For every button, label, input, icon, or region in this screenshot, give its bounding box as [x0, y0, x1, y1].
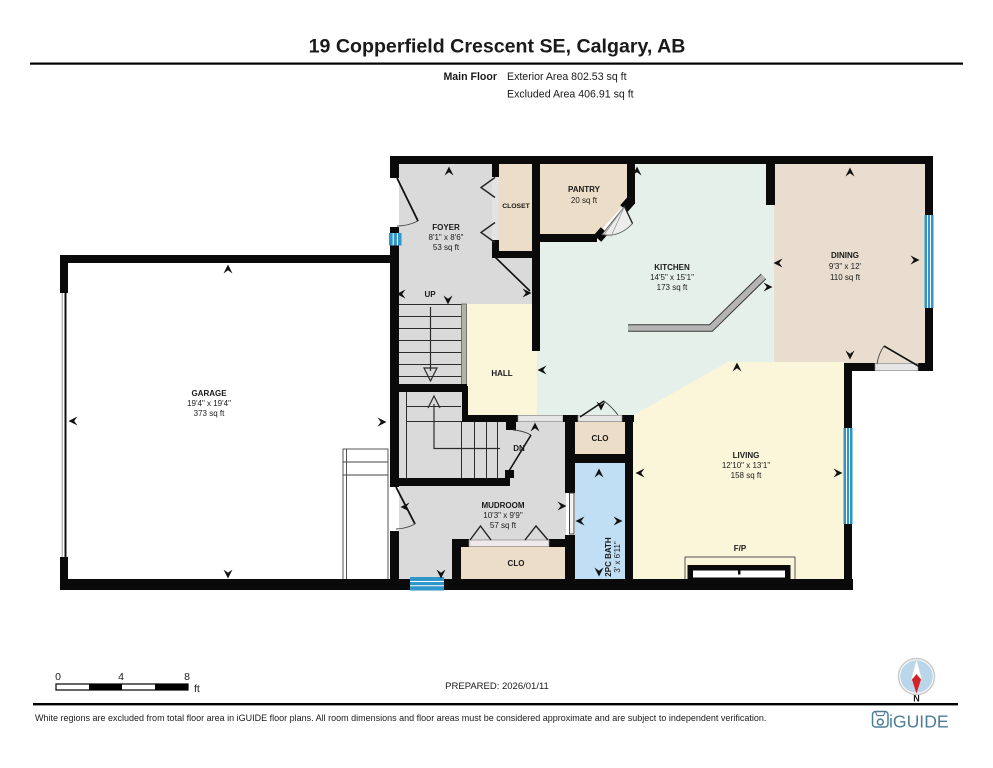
svg-text:LIVING: LIVING	[733, 451, 760, 460]
svg-text:DN: DN	[513, 444, 525, 453]
svg-text:FOYER: FOYER	[432, 223, 460, 232]
svg-text:ft: ft	[194, 683, 200, 695]
svg-text:PREPARED: 2026/01/11: PREPARED: 2026/01/11	[445, 681, 549, 692]
svg-text:CLO: CLO	[592, 434, 609, 443]
svg-text:19 Copperfield Crescent SE, Ca: 19 Copperfield Crescent SE, Calgary, AB	[309, 36, 686, 58]
svg-text:57 sq ft: 57 sq ft	[490, 521, 517, 530]
svg-text:10'3" x 9'9": 10'3" x 9'9"	[483, 511, 523, 520]
svg-text:19'4" x 19'4": 19'4" x 19'4"	[187, 399, 231, 408]
svg-text:8'1" x 8'6": 8'1" x 8'6"	[429, 233, 464, 242]
svg-text:White regions are excluded fro: White regions are excluded from total fl…	[35, 713, 766, 723]
svg-text:Exterior Area 802.53 sq ft: Exterior Area 802.53 sq ft	[507, 71, 627, 83]
svg-text:GARAGE: GARAGE	[191, 389, 227, 398]
svg-text:110 sq ft: 110 sq ft	[830, 273, 861, 282]
svg-text:4: 4	[118, 671, 124, 683]
svg-text:Main Floor: Main Floor	[443, 71, 497, 83]
svg-text:14'5" x 15'1": 14'5" x 15'1"	[650, 273, 694, 282]
svg-text:53 sq ft: 53 sq ft	[433, 243, 460, 252]
svg-text:KITCHEN: KITCHEN	[654, 263, 690, 272]
svg-text:CLOSET: CLOSET	[502, 203, 530, 210]
svg-text:N: N	[913, 694, 920, 704]
svg-text:Excluded Area 406.91 sq ft: Excluded Area 406.91 sq ft	[507, 89, 634, 101]
svg-text:CLO: CLO	[508, 559, 525, 568]
svg-text:0: 0	[55, 671, 61, 683]
svg-text:158 sq ft: 158 sq ft	[731, 471, 762, 480]
svg-text:2PC BATH: 2PC BATH	[604, 537, 613, 577]
svg-text:UP: UP	[424, 290, 436, 299]
svg-text:173 sq ft: 173 sq ft	[657, 283, 688, 292]
svg-text:HALL: HALL	[491, 369, 512, 378]
svg-text:iGUIDE: iGUIDE	[889, 712, 949, 732]
svg-text:F/P: F/P	[734, 544, 747, 553]
svg-text:8: 8	[184, 671, 190, 683]
svg-text:9'3" x 12': 9'3" x 12'	[829, 262, 862, 271]
svg-text:12'10" x 13'1": 12'10" x 13'1"	[722, 461, 770, 470]
svg-text:20 sq ft: 20 sq ft	[571, 196, 598, 205]
svg-text:373 sq ft: 373 sq ft	[194, 409, 225, 418]
svg-text:DINING: DINING	[831, 251, 859, 260]
svg-text:3' x 6'11": 3' x 6'11"	[613, 541, 622, 573]
svg-text:PANTRY: PANTRY	[568, 185, 601, 194]
svg-text:MUDROOM: MUDROOM	[481, 501, 524, 510]
